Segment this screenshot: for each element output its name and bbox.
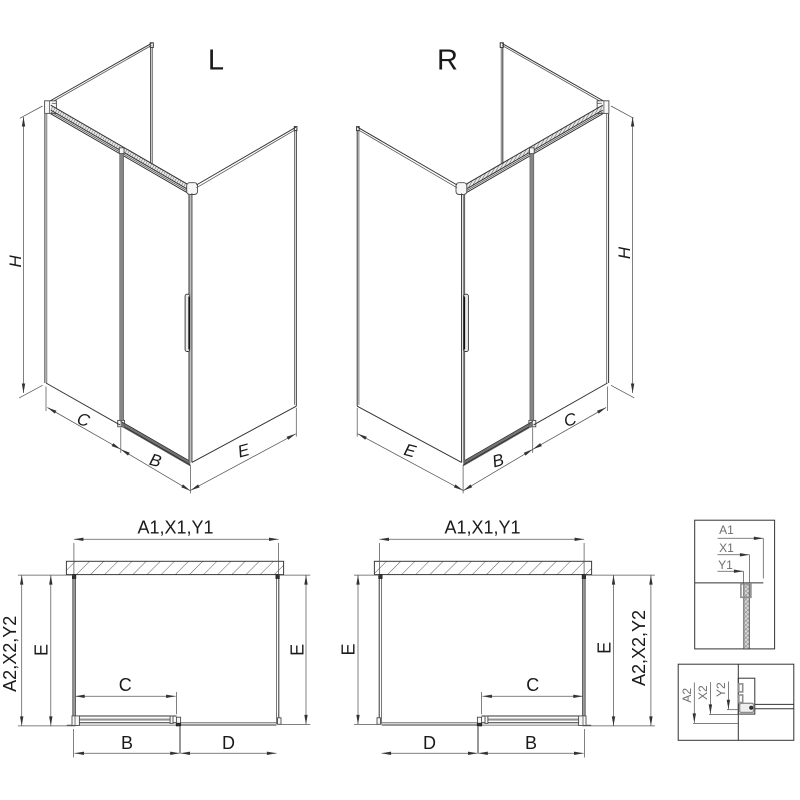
svg-text:A2,X2,Y2: A2,X2,Y2 bbox=[629, 610, 649, 686]
svg-text:R: R bbox=[437, 45, 458, 77]
svg-text:X1: X1 bbox=[719, 541, 734, 555]
svg-text:D: D bbox=[423, 733, 436, 753]
svg-text:Y2: Y2 bbox=[714, 682, 728, 697]
svg-text:A2,X2,Y2: A2,X2,Y2 bbox=[0, 616, 20, 692]
svg-text:A1,X1,Y1: A1,X1,Y1 bbox=[444, 518, 520, 538]
svg-text:E: E bbox=[339, 643, 359, 655]
svg-text:Y1: Y1 bbox=[718, 558, 733, 572]
svg-text:D: D bbox=[222, 733, 235, 753]
svg-text:B: B bbox=[525, 733, 537, 753]
svg-text:A1: A1 bbox=[719, 523, 734, 537]
svg-text:L: L bbox=[208, 45, 224, 77]
svg-text:H: H bbox=[615, 246, 634, 259]
svg-text:B: B bbox=[121, 733, 133, 753]
svg-text:X2: X2 bbox=[696, 685, 710, 700]
svg-text:A1,X1,Y1: A1,X1,Y1 bbox=[137, 518, 213, 538]
svg-text:A2: A2 bbox=[680, 688, 694, 703]
svg-text:C: C bbox=[119, 675, 132, 695]
svg-text:E: E bbox=[32, 644, 52, 656]
svg-text:E: E bbox=[288, 644, 308, 656]
svg-text:C: C bbox=[526, 675, 539, 695]
svg-text:E: E bbox=[594, 642, 614, 654]
svg-text:H: H bbox=[6, 255, 25, 268]
